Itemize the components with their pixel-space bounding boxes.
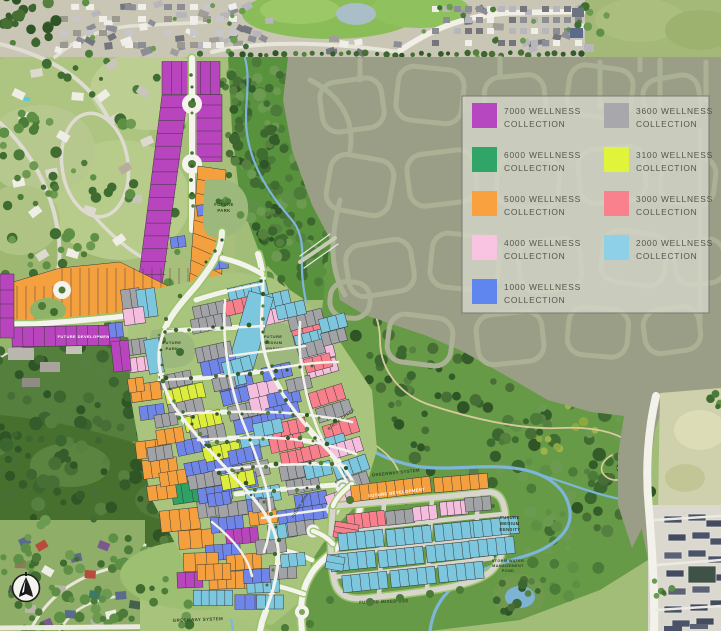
svg-text:7000 WELLNESS: 7000 WELLNESS [504,106,581,116]
svg-text:COLLECTION: COLLECTION [504,295,566,305]
svg-text:COLLECTION: COLLECTION [504,163,566,173]
svg-text:5000 WELLNESS: 5000 WELLNESS [504,194,581,204]
svg-text:POND: POND [502,569,515,573]
svg-text:COLLECTION: COLLECTION [504,207,566,217]
svg-text:3000 WELLNESS: 3000 WELLNESS [636,194,713,204]
svg-text:2000 WELLNESS: 2000 WELLNESS [636,238,713,248]
svg-text:COLLECTION: COLLECTION [504,251,566,261]
svg-text:6000 WELLNESS: 6000 WELLNESS [504,150,581,160]
svg-text:COLLECTION: COLLECTION [636,119,698,129]
svg-text:FUTURE: FUTURE [214,202,233,207]
svg-text:FUTURE: FUTURE [500,515,519,520]
svg-text:MEDIUM: MEDIUM [500,521,519,526]
svg-text:COLLECTION: COLLECTION [504,119,566,129]
svg-text:4000 WELLNESS: 4000 WELLNESS [504,238,581,248]
svg-text:DENSITY: DENSITY [500,527,521,532]
svg-text:PARK: PARK [166,346,179,351]
svg-text:COLLECTION: COLLECTION [636,163,698,173]
svg-text:PARK: PARK [217,208,230,213]
svg-text:1000 WELLNESS: 1000 WELLNESS [504,282,581,292]
svg-text:MANAGEMENT: MANAGEMENT [492,564,524,568]
svg-text:COLLECTION: COLLECTION [636,207,698,217]
svg-text:3100 WELLNESS: 3100 WELLNESS [636,150,713,160]
svg-text:3600 WELLNESS: 3600 WELLNESS [636,106,713,116]
svg-text:COLLECTION: COLLECTION [636,251,698,261]
svg-text:FUTURE: FUTURE [264,334,283,339]
svg-text:FUTURE DEVELOPMENT: FUTURE DEVELOPMENT [58,334,113,339]
svg-text:STORM WATER: STORM WATER [492,559,525,563]
svg-text:FUTURE: FUTURE [163,340,182,345]
